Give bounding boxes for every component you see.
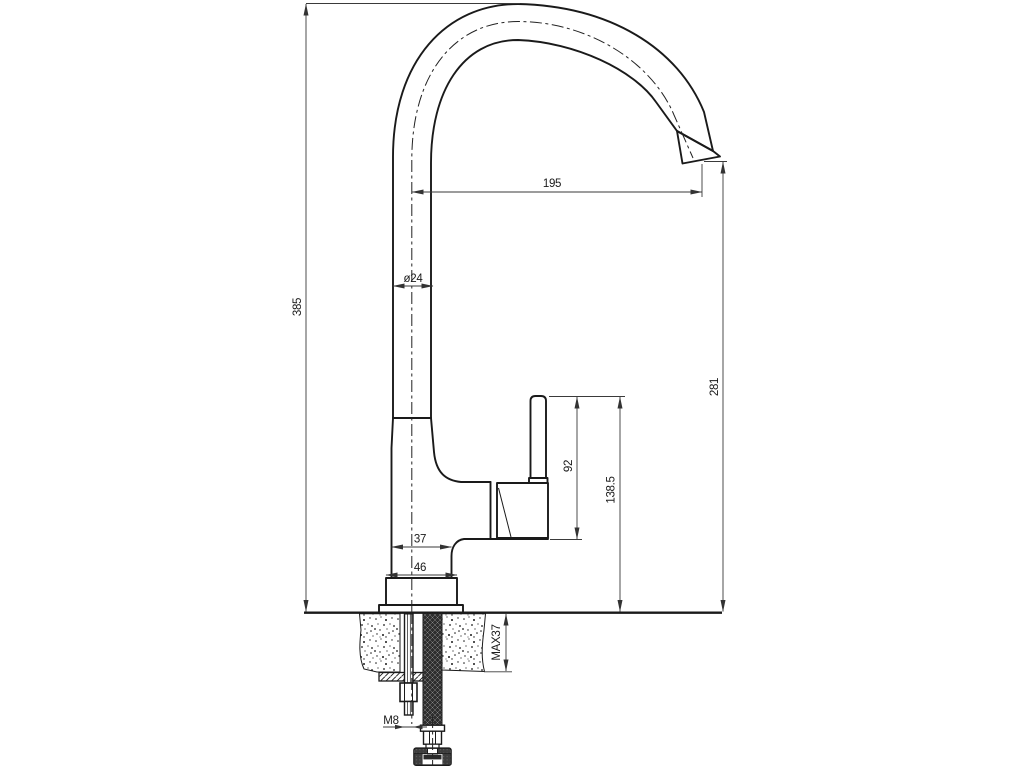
dim-total-height: 385 [292, 298, 304, 316]
dim-handle-to-body: 92 [563, 460, 575, 472]
dim-stud-thread: M8 [383, 715, 398, 727]
dim-outlet-height: 281 [709, 378, 721, 396]
dim-spout-reach: 195 [543, 178, 561, 190]
dimension-annotations: 195 385 281 ø24 92 138.5 37 46 MAX37 M8 [292, 4, 727, 730]
dim-max-mounting-thickness: MAX37 [491, 624, 503, 660]
faucet-technical-drawing: 195 385 281 ø24 92 138.5 37 46 MAX37 M8 [0, 0, 1024, 768]
dim-base-width: 46 [414, 562, 426, 574]
dim-handle-top-height: 138.5 [606, 476, 618, 503]
mounting-stud [400, 614, 417, 715]
mounting-washer [379, 673, 423, 682]
supply-hose [423, 613, 442, 726]
dim-body-depth: 37 [414, 534, 426, 546]
drawing-page: 195 385 281 ø24 92 138.5 37 46 MAX37 M8 [0, 0, 1024, 768]
faucet-outline [379, 4, 720, 613]
dim-pipe-diameter: ø24 [404, 273, 424, 285]
